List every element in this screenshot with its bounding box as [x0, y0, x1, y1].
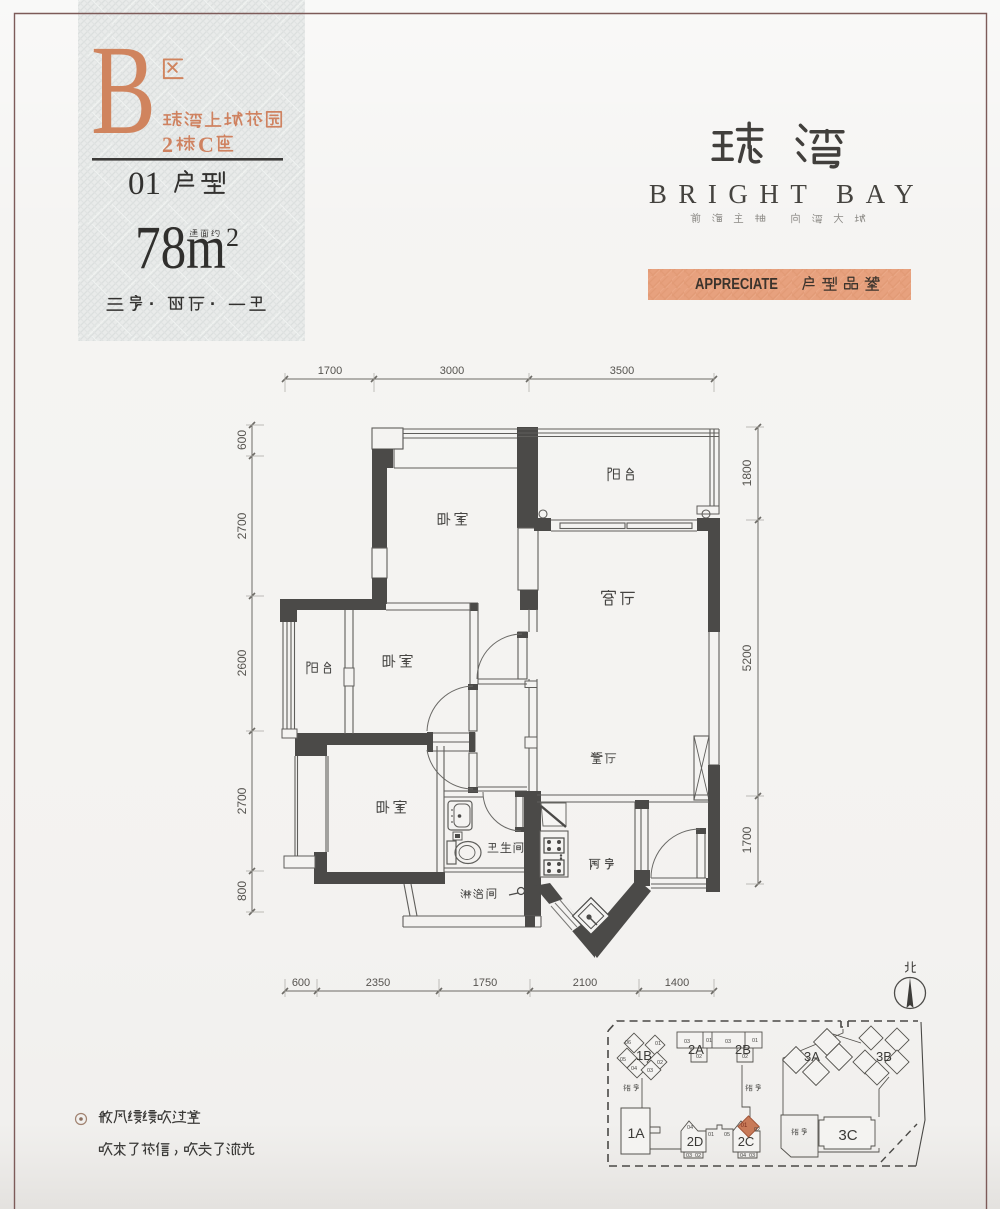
svg-text:01: 01 — [655, 1041, 661, 1047]
svg-text:2350: 2350 — [366, 977, 390, 989]
svg-text:3500: 3500 — [610, 365, 634, 377]
svg-text:01: 01 — [741, 1123, 748, 1129]
svg-text:01: 01 — [128, 166, 161, 202]
svg-text:02: 02 — [657, 1060, 663, 1066]
svg-text:01: 01 — [752, 1038, 758, 1044]
svg-text:600: 600 — [235, 430, 249, 450]
svg-text:03: 03 — [749, 1153, 755, 1159]
svg-text:06: 06 — [625, 1040, 631, 1046]
svg-text:02: 02 — [696, 1054, 702, 1060]
svg-text:05: 05 — [724, 1132, 730, 1138]
svg-text:2: 2 — [162, 132, 173, 157]
svg-text:3C: 3C — [838, 1127, 857, 1144]
svg-text:03: 03 — [647, 1068, 653, 1074]
svg-text:APPRECIATE: APPRECIATE — [695, 276, 778, 293]
svg-text:5200: 5200 — [740, 644, 754, 671]
svg-text:1700: 1700 — [318, 365, 342, 377]
svg-text:1B: 1B — [636, 1048, 652, 1063]
svg-text:3A: 3A — [804, 1049, 820, 1064]
svg-text:·: · — [210, 294, 216, 314]
svg-text:05: 05 — [620, 1057, 626, 1063]
svg-text:C: C — [198, 132, 214, 157]
svg-text:04: 04 — [687, 1125, 693, 1131]
svg-text:02: 02 — [742, 1054, 748, 1060]
svg-text:1750: 1750 — [473, 977, 497, 989]
svg-text:04: 04 — [631, 1066, 637, 1072]
svg-text:1400: 1400 — [665, 977, 689, 989]
svg-text:·: · — [149, 294, 155, 314]
svg-text:600: 600 — [292, 977, 310, 989]
svg-text:2100: 2100 — [573, 977, 597, 989]
svg-text:02: 02 — [695, 1153, 701, 1159]
svg-text:2: 2 — [226, 223, 239, 252]
svg-text:3B: 3B — [876, 1049, 892, 1064]
svg-text:2700: 2700 — [235, 787, 249, 814]
svg-text:2700: 2700 — [235, 512, 249, 539]
svg-text:03: 03 — [725, 1039, 731, 1045]
svg-text:1700: 1700 — [740, 826, 754, 853]
svg-text:1A: 1A — [627, 1125, 645, 1141]
svg-text:03: 03 — [686, 1153, 692, 1159]
svg-text:2600: 2600 — [235, 649, 249, 676]
svg-text:04: 04 — [740, 1153, 746, 1159]
svg-text:800: 800 — [235, 881, 249, 901]
svg-text:2D: 2D — [687, 1134, 704, 1149]
svg-text:01: 01 — [708, 1132, 714, 1138]
svg-text:3000: 3000 — [440, 365, 464, 377]
svg-text:1800: 1800 — [740, 459, 754, 486]
svg-text:2C: 2C — [738, 1134, 755, 1149]
svg-text:01: 01 — [706, 1038, 712, 1044]
svg-text:BRIGHT BAY: BRIGHT BAY — [649, 179, 925, 209]
svg-text:02: 02 — [754, 1127, 760, 1133]
svg-text:78m: 78m — [135, 215, 226, 282]
svg-text:B: B — [91, 19, 156, 161]
